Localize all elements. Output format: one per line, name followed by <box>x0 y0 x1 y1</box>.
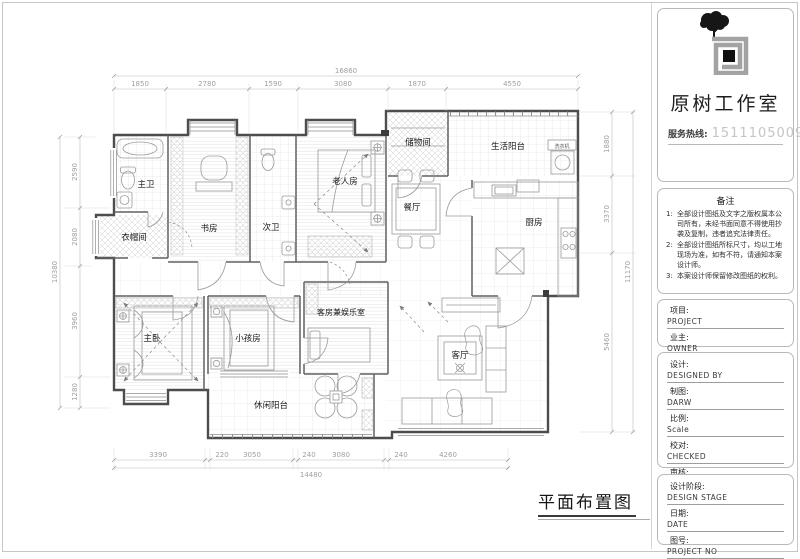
dim-left-3: 1280 <box>71 383 79 401</box>
date-value: DATE <box>667 520 784 529</box>
hotline-number: 15111050095 <box>712 126 800 141</box>
project-no-field: 图号: PROJECT NO <box>667 535 784 559</box>
dim-bottom-4: 3080 <box>332 451 350 459</box>
date-label: 日期: <box>667 508 784 519</box>
room-label-master-bedroom: 主卧 <box>143 333 161 344</box>
dim-top-4: 1870 <box>408 80 426 88</box>
dim-left-0: 2590 <box>71 163 79 181</box>
dim-top-0: 1850 <box>131 80 149 88</box>
project-no-value: PROJECT NO <box>667 547 784 556</box>
floorplan-svg: 16860 1850 2780 1590 3080 1870 4550 3390… <box>0 0 655 553</box>
room-label-service-balcony: 生活阳台 <box>491 141 525 152</box>
tree-logo-icon <box>666 9 786 75</box>
hotline-label: 服务热线: <box>668 127 708 140</box>
notes-title: 备注 <box>666 194 785 207</box>
title-underline-2 <box>538 519 650 520</box>
studio-name: 原树工作室 <box>658 89 793 116</box>
dim-bottom-5: 240 <box>394 451 407 459</box>
scale-value: Scale <box>667 425 784 434</box>
note-number: 2: <box>666 240 677 270</box>
dim-bottom-2: 3050 <box>243 451 261 459</box>
room-label-cloakroom: 衣帽间 <box>121 232 147 243</box>
scale-field: 比例: Scale <box>667 413 784 437</box>
dim-right-1: 3370 <box>603 205 611 223</box>
dim-top-3: 3080 <box>334 80 352 88</box>
dim-top-2: 1590 <box>264 80 282 88</box>
project-label: 项目: <box>667 305 784 316</box>
title-underline <box>538 515 636 517</box>
note-number: 3: <box>666 271 677 281</box>
drawn-by-label: 制图: <box>667 386 784 397</box>
stage-panel: 设计阶段: DESIGN STAGE 日期: DATE 图号: PROJECT … <box>657 474 794 545</box>
room-label-study: 书房 <box>200 223 217 234</box>
dim-bottom-1: 220 <box>215 451 228 459</box>
note-text: 本案设计师保留修改图纸的权利。 <box>677 271 782 281</box>
room-label-kitchen: 厨房 <box>525 217 542 228</box>
dim-bottom-0: 3390 <box>149 451 167 459</box>
design-panel: 设计: DESIGNED BY 制图: DARW 比例: Scale 校对: C… <box>657 352 794 468</box>
design-stage-value: DESIGN STAGE <box>667 493 784 502</box>
hotline-row: 服务热线: 15111050095 <box>668 126 783 145</box>
dim-right-total: 11170 <box>624 261 632 283</box>
scale-label: 比例: <box>667 413 784 424</box>
dim-right-0: 1880 <box>603 135 611 153</box>
column <box>543 290 549 297</box>
note-item: 1: 全部设计图纸及文字之版权属本公司所有，未经书面同意不得使用抄袭及复制，违者… <box>666 209 785 239</box>
room-label-elder-room: 老人房 <box>332 176 358 187</box>
room-label-guest-room: 客房兼娱乐室 <box>317 307 365 317</box>
date-field: 日期: DATE <box>667 508 784 532</box>
column <box>381 130 389 136</box>
studio-panel: 原树工作室 服务热线: 15111050095 <box>657 8 794 182</box>
room-label-washer: 洗衣机 <box>554 143 569 150</box>
note-text: 全部设计图纸所标尺寸，均以工地现场为准，如有不符，请通知本案设计师。 <box>677 240 785 270</box>
dim-bottom-6: 4260 <box>439 451 457 459</box>
room-label-master-bath: 主卫 <box>137 179 155 190</box>
note-item: 3: 本案设计师保留修改图纸的权利。 <box>666 271 785 281</box>
room-label-second-bath: 次卫 <box>262 222 280 233</box>
note-text: 全部设计图纸及文字之版权属本公司所有，未经书面同意不得使用抄袭及复制，违者追究法… <box>677 209 785 239</box>
note-number: 1: <box>666 209 677 239</box>
design-stage-field: 设计阶段: DESIGN STAGE <box>667 481 784 505</box>
checked-field: 校对: CHECKED <box>667 440 784 464</box>
drawn-by-value: DARW <box>667 398 784 407</box>
checked-value: CHECKED <box>667 452 784 461</box>
dim-top-1: 2780 <box>198 80 216 88</box>
dim-top-5: 4550 <box>503 80 521 88</box>
project-value: PROJECT <box>667 317 784 326</box>
room-label-living-room: 客厅 <box>451 350 469 361</box>
project-no-label: 图号: <box>667 535 784 546</box>
dim-bottom-total: 14480 <box>300 471 322 479</box>
dim-right-2: 5460 <box>603 333 611 351</box>
room-label-kids-room: 小孩房 <box>235 333 261 344</box>
notes-panel: 备注 1: 全部设计图纸及文字之版权属本公司所有，未经书面同意不得使用抄袭及复制… <box>657 188 794 294</box>
project-panel: 项目: PROJECT 业主: OWNER <box>657 299 794 347</box>
project-field: 项目: PROJECT <box>667 305 784 329</box>
dim-top-total: 16860 <box>335 67 357 75</box>
designed-by-field: 设计: DESIGNED BY <box>667 359 784 383</box>
owner-label: 业主: <box>667 332 784 343</box>
designed-by-value: DESIGNED BY <box>667 371 784 380</box>
room-label-dining: 餐厅 <box>403 203 421 213</box>
note-item: 2: 全部设计图纸所标尺寸，均以工地现场为准，如有不符，请通知本案设计师。 <box>666 240 785 270</box>
dim-left-1: 2080 <box>71 228 79 246</box>
dim-left-total: 10380 <box>51 261 59 283</box>
designed-by-label: 设计: <box>667 359 784 370</box>
drawn-by-field: 制图: DARW <box>667 386 784 410</box>
checked-label: 校对: <box>667 440 784 451</box>
plan-title: 平面布置图 <box>538 488 650 513</box>
room-label-leisure-balcony: 休闲阳台 <box>254 400 288 411</box>
design-stage-label: 设计阶段: <box>667 481 784 492</box>
room-label-storage: 储物间 <box>405 137 431 148</box>
plan-title-block: 平面布置图 <box>538 488 650 520</box>
dim-left-2: 3960 <box>71 312 79 330</box>
dim-bottom-3: 240 <box>302 451 315 459</box>
